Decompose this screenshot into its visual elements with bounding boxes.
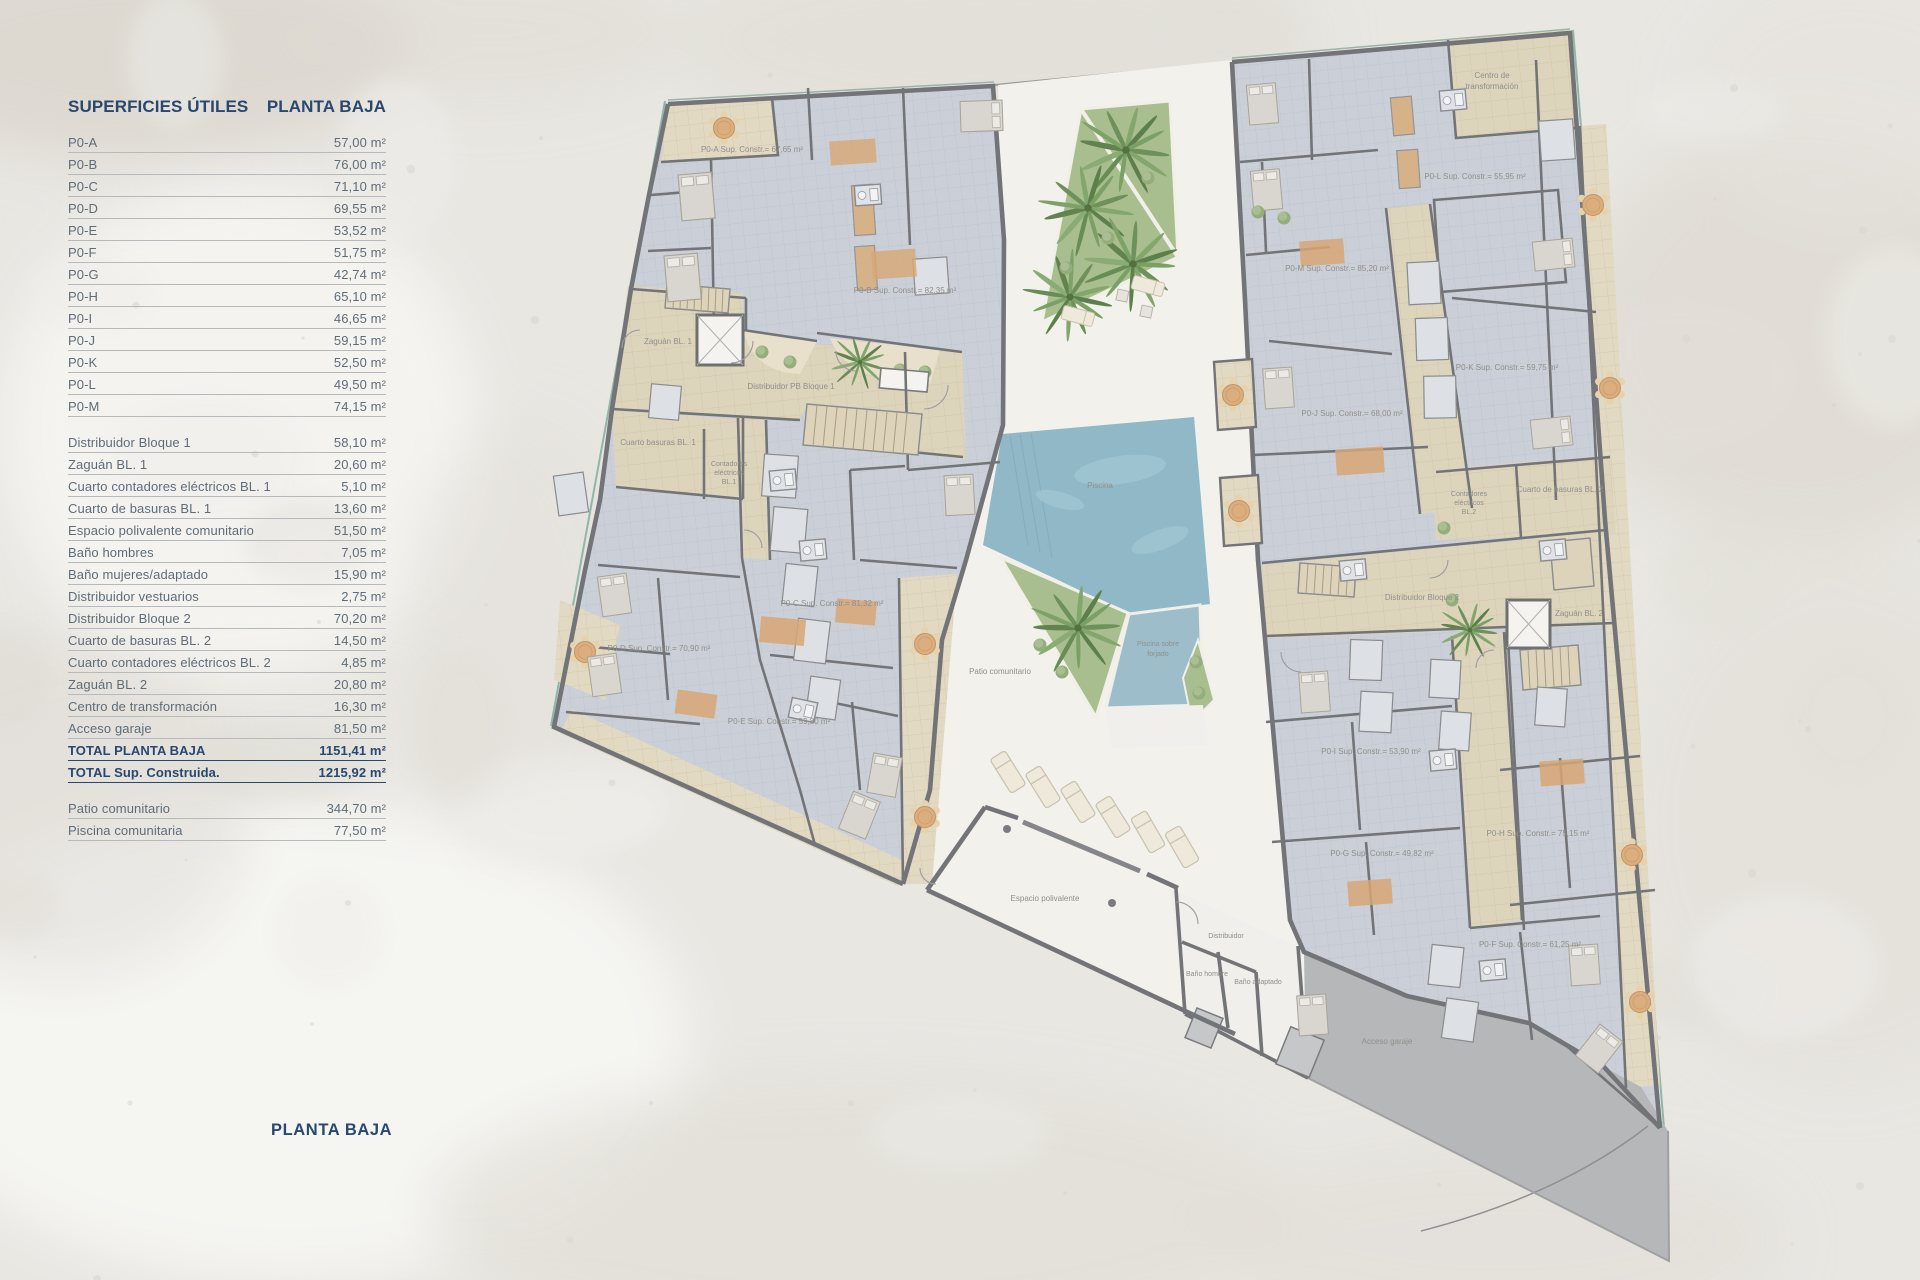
svg-text:Piscina sobre: Piscina sobre — [1137, 641, 1179, 648]
svg-text:Baño adaptado: Baño adaptado — [1234, 979, 1282, 986]
svg-text:P0-C Sup. Constr.= 81,32 m²: P0-C Sup. Constr.= 81,32 m² — [781, 599, 884, 608]
svg-text:P0-B Sup. Constr.= 82,35 m²: P0-B Sup. Constr.= 82,35 m² — [854, 286, 957, 295]
svg-text:Piscina: Piscina — [1087, 481, 1113, 490]
svg-text:Acceso garaje: Acceso garaje — [1362, 1037, 1413, 1046]
svg-text:Cuarto de basuras BL. 2: Cuarto de basuras BL. 2 — [1517, 485, 1604, 494]
svg-text:P0-A Sup. Constr.= 67,65 m²: P0-A Sup. Constr.= 67,65 m² — [701, 145, 803, 154]
svg-text:BL.2: BL.2 — [1462, 509, 1477, 516]
svg-text:Patio comunitario: Patio comunitario — [969, 667, 1031, 676]
svg-text:Baño hombre: Baño hombre — [1186, 971, 1228, 978]
svg-text:Contadores: Contadores — [711, 461, 748, 468]
svg-text:P0-L Sup. Constr.= 55,95 m²: P0-L Sup. Constr.= 55,95 m² — [1424, 172, 1526, 181]
svg-text:Centro de: Centro de — [1474, 71, 1510, 80]
svg-text:P0-E Sup. Constr.= 59,80 m²: P0-E Sup. Constr.= 59,80 m² — [728, 717, 831, 726]
svg-text:Cuarto basuras BL. 1: Cuarto basuras BL. 1 — [620, 438, 696, 447]
svg-text:transformación: transformación — [1466, 82, 1519, 91]
svg-text:eléctricos: eléctricos — [1454, 500, 1484, 507]
svg-text:P0-D Sup. Constr.= 70,90 m²: P0-D Sup. Constr.= 70,90 m² — [608, 644, 711, 653]
svg-text:P0-J Sup. Constr.= 68,00 m²: P0-J Sup. Constr.= 68,00 m² — [1301, 409, 1402, 418]
svg-text:forjado: forjado — [1147, 651, 1169, 658]
svg-text:Distribuidor: Distribuidor — [1208, 933, 1244, 940]
svg-text:P0-F Sup. Constr.= 61,25 m²: P0-F Sup. Constr.= 61,25 m² — [1479, 940, 1581, 949]
svg-text:P0-G Sup. Constr.= 49,82 m²: P0-G Sup. Constr.= 49,82 m² — [1330, 849, 1434, 858]
svg-text:Contadores: Contadores — [1451, 491, 1488, 498]
svg-text:P0-M Sup. Constr.= 85,20 m²: P0-M Sup. Constr.= 85,20 m² — [1285, 264, 1389, 273]
svg-text:Zaguán BL. 1: Zaguán BL. 1 — [644, 337, 693, 346]
svg-text:P0-K Sup. Constr.= 59,75 m²: P0-K Sup. Constr.= 59,75 m² — [1456, 363, 1559, 372]
svg-text:BL.1: BL.1 — [722, 479, 737, 486]
svg-text:Espacio polivalente: Espacio polivalente — [1011, 894, 1080, 903]
svg-text:Distribuidor PB Bloque 1: Distribuidor PB Bloque 1 — [747, 382, 835, 391]
svg-text:Distribuidor Bloque 2: Distribuidor Bloque 2 — [1385, 593, 1460, 602]
svg-text:P0-H Sup. Constr.= 75,15 m²: P0-H Sup. Constr.= 75,15 m² — [1487, 829, 1590, 838]
svg-text:P0-I Sup. Constr.= 53,90 m²: P0-I Sup. Constr.= 53,90 m² — [1321, 747, 1421, 756]
svg-text:Zaguán BL. 2: Zaguán BL. 2 — [1555, 609, 1604, 618]
svg-text:eléctricos: eléctricos — [714, 470, 744, 477]
